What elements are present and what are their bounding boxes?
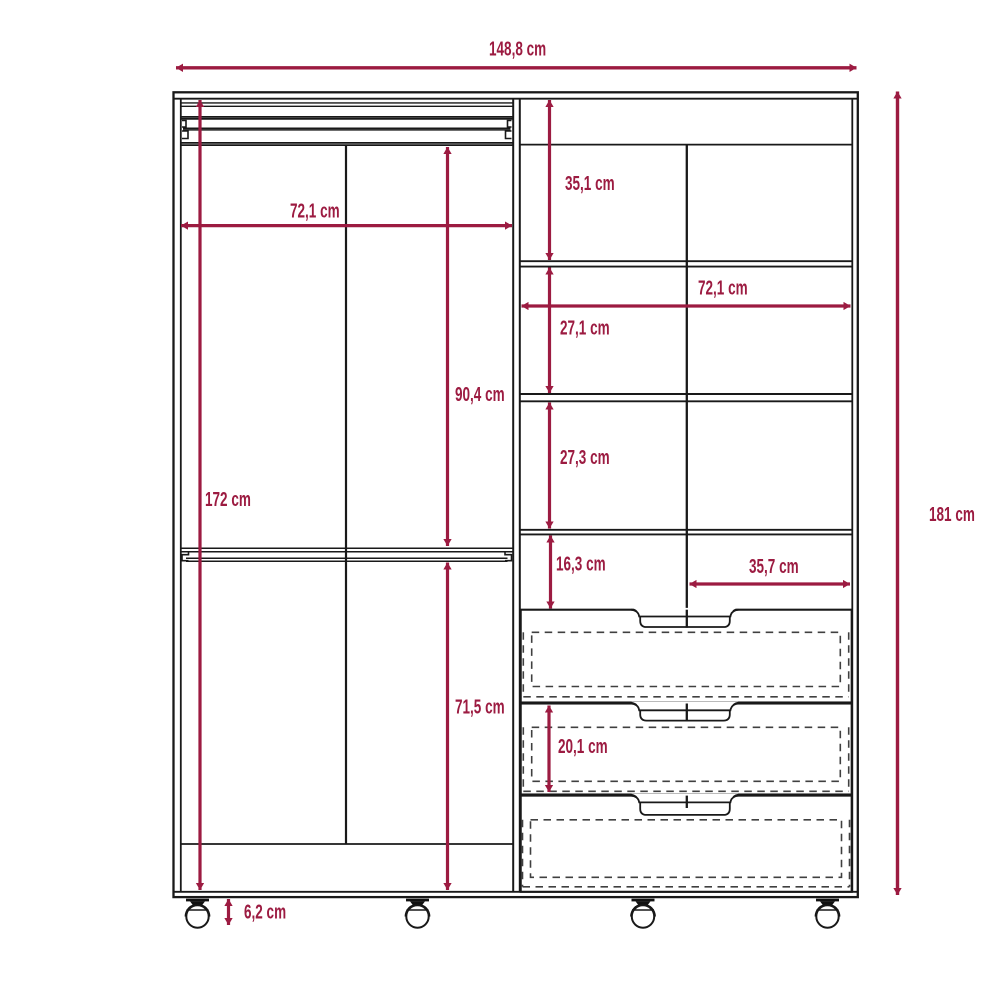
- svg-text:90,4 cm: 90,4 cm: [455, 382, 505, 406]
- svg-text:172 cm: 172 cm: [205, 487, 251, 511]
- svg-text:35,7 cm: 35,7 cm: [749, 554, 799, 578]
- svg-text:72,1 cm: 72,1 cm: [290, 199, 340, 223]
- svg-text:71,5 cm: 71,5 cm: [455, 695, 505, 719]
- svg-text:27,1 cm: 27,1 cm: [560, 316, 610, 340]
- svg-text:181 cm: 181 cm: [929, 502, 975, 526]
- svg-text:72,1 cm: 72,1 cm: [698, 276, 748, 300]
- svg-text:27,3 cm: 27,3 cm: [560, 445, 610, 469]
- svg-text:16,3 cm: 16,3 cm: [556, 552, 606, 576]
- svg-text:35,1 cm: 35,1 cm: [565, 171, 615, 195]
- svg-text:6,2 cm: 6,2 cm: [244, 900, 286, 924]
- svg-text:20,1 cm: 20,1 cm: [558, 734, 608, 758]
- svg-text:148,8 cm: 148,8 cm: [489, 37, 546, 61]
